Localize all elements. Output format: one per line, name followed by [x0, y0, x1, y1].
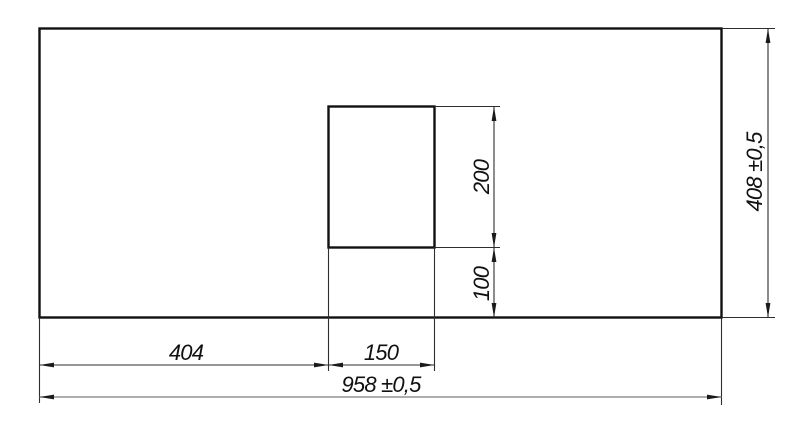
outer-panel-outline — [40, 29, 722, 318]
dim-label-overall-height: 408 ±0,5 — [742, 131, 767, 212]
arrow-150-left-icon — [329, 363, 344, 368]
dim-label-cutout-height: 200 — [469, 158, 494, 195]
arrow-404-left-icon — [40, 363, 55, 368]
arrow-958-right-icon — [707, 395, 722, 400]
dim-label-bottom-offset: 100 — [469, 265, 494, 301]
arrow-958-left-icon — [40, 395, 55, 400]
arrow-100-bottom-icon — [492, 303, 497, 318]
arrow-408-bottom-icon — [766, 303, 771, 318]
arrow-150-right-icon — [420, 363, 435, 368]
arrow-404-right-icon — [314, 363, 329, 368]
dimension-drawing: 404 150 958 ±0,5 200 100 408 ±0,5 — [0, 0, 800, 442]
dim-arrowheads — [40, 29, 771, 400]
dim-label-left-offset: 404 — [169, 340, 204, 365]
arrow-408-top-icon — [766, 29, 771, 44]
arrow-100-top-icon — [492, 248, 497, 263]
dim-label-overall-width: 958 ±0,5 — [341, 372, 422, 397]
cutout-outline — [329, 107, 435, 248]
technical-drawing-canvas: 404 150 958 ±0,5 200 100 408 ±0,5 — [0, 0, 800, 442]
arrow-200-top-icon — [492, 107, 497, 122]
arrow-200-bottom-icon — [492, 233, 497, 248]
dim-label-cutout-width: 150 — [364, 340, 400, 365]
